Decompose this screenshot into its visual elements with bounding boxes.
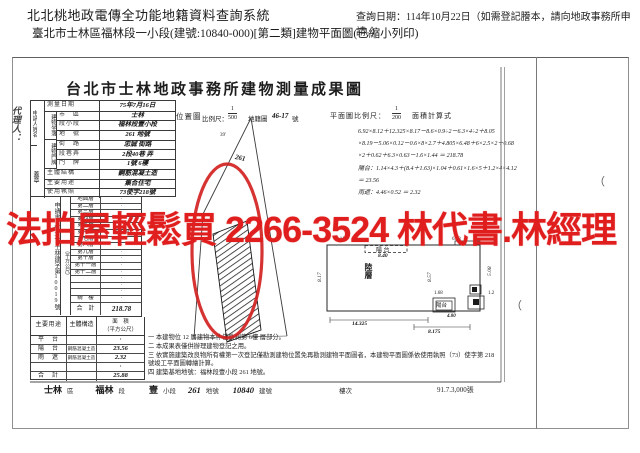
footer-label: 區 xyxy=(67,385,74,395)
agent-margin-note: 代理人： xyxy=(10,106,23,142)
floor-row: · xyxy=(71,276,142,283)
building-info-table: 申請人姓名 蓋章 建物坐落 建物門牌 測量日期 75年7月16日 市 區 士林 … xyxy=(30,100,176,197)
survey-notes: 一 本建物位 12 層建物本件僅勘測第 6樓 層部分。二 本成果表僅供辦理建物登… xyxy=(148,334,496,378)
row-label: 市 區 xyxy=(57,111,100,121)
row-label: 段小段 xyxy=(57,120,100,130)
dim-balcony-bottom: 1.68 xyxy=(434,291,443,296)
calc-line: 陽台：1.14×4.3＋(8.4＋1.63)×1.04＋0.61×1.6×5＋1… xyxy=(358,163,528,175)
row-value: 75年7月16日 xyxy=(100,101,175,111)
annex-structure xyxy=(67,372,97,381)
annex-area: · xyxy=(97,363,144,371)
floor-area-value: · xyxy=(101,256,142,262)
bearing-mark: 39' xyxy=(220,133,226,138)
annex-structure xyxy=(67,336,97,344)
dim-side-right: 1.2 xyxy=(488,291,494,296)
footer-label: 小段 xyxy=(163,385,176,395)
annex-structure: 鋼筋混凝土造 xyxy=(67,354,97,362)
note-line: 二 本成果表僅供辦理建物登記之用。 xyxy=(148,343,496,351)
map-sheet-number: 46-17 xyxy=(272,112,288,120)
annex-area: 25.88 xyxy=(97,372,144,381)
annex-table: 主要用途 主體構造 面 積 （平方公尺） 平 台 · 陽 台 鋼筋混凝土造 23… xyxy=(30,317,145,380)
annex-header-use: 主要用途 xyxy=(31,317,67,335)
annex-row: 平 台 · xyxy=(31,336,144,345)
calc-line: ×8.19－5.06×0.12－0.6×8×2.7＋4.805×6.48＋6×2… xyxy=(358,138,528,150)
plan-scale-label: 平面圖比例尺： xyxy=(330,111,386,121)
floor-label xyxy=(71,289,101,295)
annex-row: 合 計 25.88 xyxy=(31,372,144,381)
annex-use: 陽 台 xyxy=(31,345,67,353)
balcony-bottom-label: 陽台 xyxy=(436,301,447,309)
map-sheet-prefix: 地籍圖 xyxy=(248,113,268,123)
area-calc-label: 面積計算式 xyxy=(412,111,452,121)
dim-bottom-3: 4.80 xyxy=(447,314,456,319)
row-value: 士林 xyxy=(100,111,175,121)
plan-scale-fraction: 1 200 xyxy=(392,106,401,121)
scale-denominator: 200 xyxy=(392,114,401,121)
annex-header-area-line2: （平方公尺） xyxy=(97,326,144,334)
location-scale-label: 比例尺： xyxy=(202,113,228,123)
area-calculations: 6.92×8.12＋12.325×8.17－8.6×0.9÷2－6.3×4÷2＋… xyxy=(358,126,528,199)
footer-item: 261 地號 xyxy=(188,385,219,395)
floor-row: 第十二層 · xyxy=(71,270,142,277)
dim-mid: 8.57 xyxy=(427,272,433,282)
fold-mark-right: （ xyxy=(594,173,605,189)
map-sheet-suffix: 號 xyxy=(292,113,299,123)
annex-use xyxy=(31,363,67,371)
annex-header-area-line1: 面 積 xyxy=(97,318,144,326)
calc-line: ＝ 23.56 xyxy=(358,175,528,187)
floor-label: 第十層 xyxy=(71,256,101,262)
note-line: 三 依實施建築改良物所有權第一次登記僅勘測建物位置免再勘測建物平面圖者，本建物平… xyxy=(148,352,496,368)
note-line: 四 建築基地地號：福林段壹小段 261 地號。 xyxy=(148,369,496,377)
document-subtitle: 臺北市士林區福林段一小段(建號:10840-000)[第二類]建物平面圖(已縮小… xyxy=(32,25,419,41)
survey-title: 台北市士林地政事務所建物測量成果圖 xyxy=(66,78,364,99)
floor-area-value: · xyxy=(101,270,142,276)
calc-line: ×2＋0.62＋6.3×0.63－1.6×1.44 ＝ 218.78 xyxy=(358,150,528,162)
floor-area-value: · xyxy=(101,296,142,302)
floor-row: 第十層 · xyxy=(71,256,142,263)
row-value: 集合住宅 xyxy=(100,179,175,189)
annex-row: 陽 台 鋼筋混凝土造 23.56 xyxy=(31,345,144,354)
footer-value: 福林 xyxy=(96,383,114,396)
applicant-column: 申請人姓名 蓋章 xyxy=(31,101,45,198)
red-ad-overlay: 法拍屋輕鬆買 2266-3524 林代書.林經理 xyxy=(6,201,616,253)
print-batch-number: 91.7.3,000張 xyxy=(437,385,474,395)
dim-right: 5.08 xyxy=(487,266,493,276)
footer-item: 樓次 xyxy=(334,385,352,395)
footer-item: 士林 區 xyxy=(44,383,74,396)
scale-numerator: 1 xyxy=(228,106,237,114)
floor-label: 騎 樓 xyxy=(71,296,101,302)
floor-label: 第十一層 xyxy=(71,263,101,269)
footer-item: 壹 小段 xyxy=(149,383,176,396)
footer-value: 壹 xyxy=(149,383,158,396)
annex-area: 23.56 xyxy=(97,345,144,353)
row-label: 段巷弄 xyxy=(57,150,100,160)
floor-area-value: · xyxy=(101,289,142,295)
annex-use: 平 台 xyxy=(31,336,67,344)
row-value: 261 地號 xyxy=(100,130,175,140)
footer-label: 樓次 xyxy=(339,385,352,395)
row-label: 主體結構 xyxy=(45,169,100,179)
scale-numerator: 1 xyxy=(392,106,401,114)
row-label: 地 號 xyxy=(57,130,100,140)
footer-item: 10840 建號 xyxy=(233,385,272,395)
footer-label: 段 xyxy=(119,385,126,395)
footer-value: 10840 xyxy=(233,385,254,395)
applicant-label: 申請人姓名 xyxy=(31,101,37,146)
row-value: 鋼筋混凝土造 xyxy=(100,169,175,179)
note-line: 一 本建物位 12 層建物本件僅勘測第 6樓 層部分。 xyxy=(148,334,496,342)
floor-label xyxy=(71,276,101,282)
row-value: 福林段壹小段 xyxy=(100,120,175,130)
footer-label: 地號 xyxy=(206,385,219,395)
floor-total-value: 218.78 xyxy=(101,303,142,315)
seal-label: 蓋章 xyxy=(31,146,40,197)
system-title: 北北桃地政電傳全功能地籍資料查詢系統 xyxy=(27,5,270,24)
annex-header: 主要用途 主體構造 面 積 （平方公尺） xyxy=(31,317,144,336)
dim-bottom-1: 14.325 xyxy=(352,321,367,327)
annex-header-structure: 主體構造 xyxy=(67,317,97,335)
annex-use: 雨 遮 xyxy=(31,354,67,362)
floor-row: 第十一層 · xyxy=(71,263,142,270)
footer-value: 261 xyxy=(188,385,201,395)
footer-value: 士林 xyxy=(44,383,62,396)
annex-structure: 鋼筋混凝土造 xyxy=(67,345,97,353)
group-label-location: 建物坐落 xyxy=(45,111,57,140)
calc-line: 6.92×8.12＋12.325×8.17－8.6×0.9÷2－6.3×4÷2＋… xyxy=(358,126,528,138)
floor-row: · xyxy=(71,283,142,290)
footer-strip: 士林 區 福林 段 壹 小段 261 地號 10840 建號 樓次 xyxy=(44,383,352,396)
annex-area: · xyxy=(97,336,144,344)
dim-top: 8.40 xyxy=(378,253,388,259)
floor-label xyxy=(71,283,101,289)
location-scale-fraction: 1 500 xyxy=(228,106,237,121)
floor-area-value: · xyxy=(101,276,142,282)
footer-label: 建號 xyxy=(259,385,272,395)
screen: { "sys": { "title": "北北桃地政電傳全功能地籍資料查詢系統"… xyxy=(0,0,640,453)
row-value: 1號 6樓 xyxy=(100,159,175,169)
calc-line: 雨遮：4.46×0.52 ＝ 2.32 xyxy=(358,187,528,199)
group-label-address: 建物門牌 xyxy=(45,140,57,169)
floor-row: 騎 樓 · xyxy=(71,296,142,303)
row-label: 主要用途 xyxy=(45,179,100,189)
row-label: 測量日期 xyxy=(45,101,100,111)
annex-row: · xyxy=(31,363,144,372)
unit-floor-label: 陸層 xyxy=(363,263,374,279)
annex-area: 2.32 xyxy=(97,354,144,362)
row-value: 忠誠 街路 xyxy=(100,140,175,150)
dim-left: 8.17 xyxy=(317,272,323,282)
annex-rows: 平 台 · 陽 台 鋼筋混凝土造 23.56 雨 遮 鋼筋混凝土造 2.32 · xyxy=(31,336,144,381)
annex-row: 雨 遮 鋼筋混凝土造 2.32 xyxy=(31,354,144,363)
floor-area-value: · xyxy=(101,263,142,269)
floor-total-label: 合 計 xyxy=(71,303,101,315)
floor-area-value: · xyxy=(101,283,142,289)
row-label: 門 牌 xyxy=(57,159,100,169)
row-label: 街 路 xyxy=(57,140,100,150)
scale-denominator: 500 xyxy=(228,114,237,121)
location-map-label: 位置圖 xyxy=(176,111,202,122)
annex-use: 合 計 xyxy=(31,372,67,381)
floor-row: · xyxy=(71,289,142,296)
row-value: 2段40巷 弄 xyxy=(100,150,175,160)
annex-header-area: 面 積 （平方公尺） xyxy=(97,317,144,335)
fold-mark-left: （ xyxy=(511,297,522,313)
floor-total-row: 合 計 218.78 xyxy=(71,303,142,315)
footer-item: 福林 段 xyxy=(96,383,126,396)
floor-label: 第十二層 xyxy=(71,270,101,276)
annex-structure xyxy=(67,363,97,371)
